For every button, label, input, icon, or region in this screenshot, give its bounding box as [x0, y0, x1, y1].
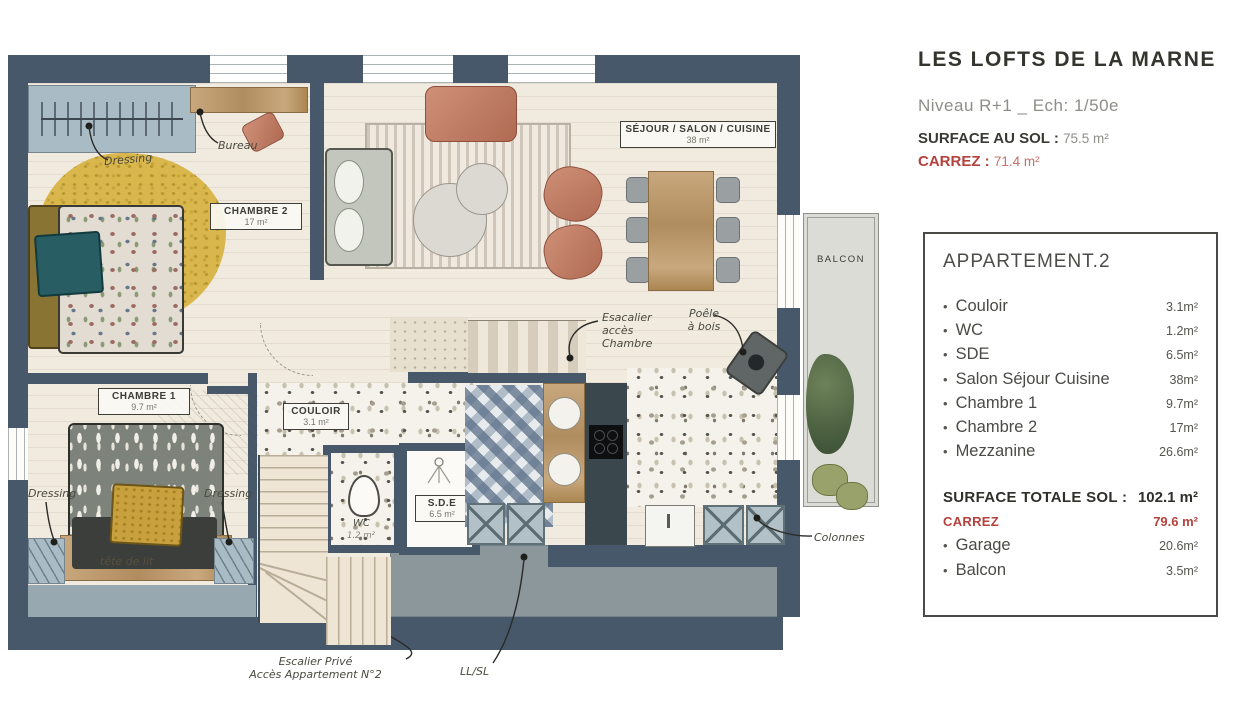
tete-de-lit-label: tête de lit: [100, 555, 153, 568]
wc-room: WC 1.2 m²: [323, 445, 402, 553]
room-label: Couloir: [956, 295, 1166, 318]
balcony: BALCON: [803, 213, 879, 507]
room-value: 3.1m²: [1166, 296, 1198, 319]
coffee-table-small: [456, 163, 508, 215]
wall-kitchen-bottom: [548, 545, 783, 567]
stove-door: [745, 351, 767, 373]
dining-chair: [716, 257, 740, 283]
extra-label: Garage: [956, 534, 1160, 557]
sofa: [325, 148, 393, 266]
room-label: SDE: [956, 343, 1166, 366]
room-row: •Chambre 19.7m²: [943, 392, 1198, 416]
room-label: Chambre 2: [956, 416, 1170, 439]
room-value: 6.5m²: [1166, 344, 1198, 367]
private-stair-winder: [258, 557, 328, 623]
dressing-right-unit: [214, 538, 254, 584]
room-value: 38m²: [1170, 369, 1198, 392]
room-label: Mezzanine: [956, 440, 1160, 463]
chambre1-pillow: [109, 483, 184, 547]
sofa-cushion: [334, 160, 364, 204]
extra-row: •Garage20.6m²: [943, 534, 1198, 558]
extra-value: 20.6m²: [1159, 535, 1198, 558]
dressing-left-label: Dressing: [28, 487, 76, 500]
wc-label: WC: [353, 517, 370, 530]
extra-label: Balcon: [956, 559, 1166, 582]
column-box-1: [703, 505, 744, 545]
clothes-hangers: [41, 102, 182, 136]
room-row: •Chambre 217m²: [943, 416, 1198, 440]
wall-mezzanine-stair-guard: [408, 372, 586, 383]
dressing-left-unit: [28, 538, 65, 584]
window-top-1: [210, 55, 287, 83]
wall-chambre1-top: [28, 373, 208, 384]
wall-left: [8, 55, 28, 617]
sofa-cushion: [334, 208, 364, 252]
dining-chair: [626, 177, 650, 203]
kitchen-counter-dark: [585, 383, 627, 545]
room-row: •SDE6.5m²: [943, 343, 1198, 367]
bureau-desk: [190, 87, 308, 113]
wc-area: 1.2 m²: [347, 530, 375, 543]
room-label: WC: [956, 319, 1166, 342]
wall-bottom: [8, 617, 783, 650]
dressing-chambre2-unit: [28, 85, 196, 153]
dining-chair: [626, 257, 650, 283]
balcony-door-upper: [777, 215, 800, 308]
chambre1-label: CHAMBRE 1 9.7 m²: [98, 388, 190, 415]
faucet-icon: [667, 514, 670, 528]
sofa-terracotta: [425, 86, 517, 142]
carrez-line: CARREZ : 71.4 m²: [918, 153, 1040, 170]
plant: [806, 354, 854, 454]
panel-title: APPARTEMENT.2: [943, 251, 1198, 273]
carrez-total-row: CARREZ 79.6 m²: [943, 510, 1198, 534]
bureau-label: Bureau: [218, 139, 258, 152]
surface-totale-row: SURFACE TOTALE SOL : 102.1 m²: [943, 486, 1198, 510]
sejour-label: SÉJOUR / SALON / CUISINE 38 m²: [620, 121, 776, 148]
chambre2-label: CHAMBRE 2 17 m²: [210, 203, 302, 230]
kitchen-counter-wood: [543, 383, 585, 503]
sde-label: S.D.E 6.5 m²: [415, 495, 469, 522]
chambre2-pillow: [34, 231, 104, 297]
room-value: 1.2m²: [1166, 320, 1198, 343]
dryer-box: [507, 503, 545, 545]
floorplan-drawing: WC 1.2 m² S.D.E 6.5 m²: [8, 55, 880, 720]
shower-icon: [421, 457, 457, 487]
room-label: Chambre 1: [956, 392, 1166, 415]
balcony-label: BALCON: [804, 254, 878, 265]
escalier-prive-label: Escalier Privé Accès Appartement N°2: [203, 655, 428, 681]
washer-box: [467, 503, 505, 545]
window-top-2: [363, 55, 453, 83]
window-left: [8, 428, 28, 480]
cooktop-icon: [589, 425, 623, 459]
poele-label: Poêle à bois: [676, 307, 732, 333]
sink-basin-1: [548, 397, 581, 430]
dining-chair: [716, 177, 740, 203]
wall-right-upper: [777, 55, 800, 215]
window-top-3: [508, 55, 595, 83]
dressing-right-label: Dressing: [204, 487, 252, 500]
room-row: •Couloir3.1m²: [943, 295, 1198, 319]
llsl-label: LL/SL: [460, 665, 489, 678]
private-stair-upper: [258, 455, 328, 557]
column-box-2: [746, 505, 785, 545]
floorplan-sheet: WC 1.2 m² S.D.E 6.5 m²: [0, 0, 1240, 720]
colonnes-label: Colonnes: [814, 531, 865, 544]
balcony-door-lower: [777, 395, 800, 460]
chambre1-bottom-panel: [28, 585, 256, 617]
room-row: •Mezzanine26.6m²: [943, 440, 1198, 464]
couloir-label: COULOIR 3.1 m²: [283, 403, 349, 430]
dining-chair: [716, 217, 740, 243]
room-row: •WC1.2m²: [943, 319, 1198, 343]
surface-au-sol-line: SURFACE AU SOL : 75.5 m²: [918, 130, 1109, 147]
dining-chair: [626, 217, 650, 243]
utility-sink: [645, 505, 695, 547]
room-value: 17m²: [1170, 417, 1198, 440]
sink-basin-2: [548, 453, 581, 486]
balcony-chair-2: [836, 482, 868, 510]
room-row: •Salon Séjour Cuisine38m²: [943, 368, 1198, 392]
dining-table: [648, 171, 714, 291]
room-label: Salon Séjour Cuisine: [956, 368, 1170, 391]
sheet-title: LES LOFTS DE LA MARNE: [918, 48, 1216, 72]
extra-value: 3.5m²: [1166, 560, 1198, 583]
sheet-subtitle: Niveau R+1 _ Ech: 1/50e: [918, 96, 1119, 116]
private-stair-lower: [326, 557, 391, 645]
mezzanine-stair-landing: [390, 318, 468, 372]
apartment-summary-panel: APPARTEMENT.2 •Couloir3.1m² •WC1.2m² •SD…: [923, 232, 1218, 617]
escalier-chambre-label: Esacalier accès Chambre: [602, 311, 652, 350]
room-value: 9.7m²: [1166, 393, 1198, 416]
wall-chambre2-sejour: [310, 55, 324, 280]
room-value: 26.6m²: [1159, 441, 1198, 464]
mezzanine-stair: [468, 320, 586, 373]
extra-row: •Balcon3.5m²: [943, 559, 1198, 583]
